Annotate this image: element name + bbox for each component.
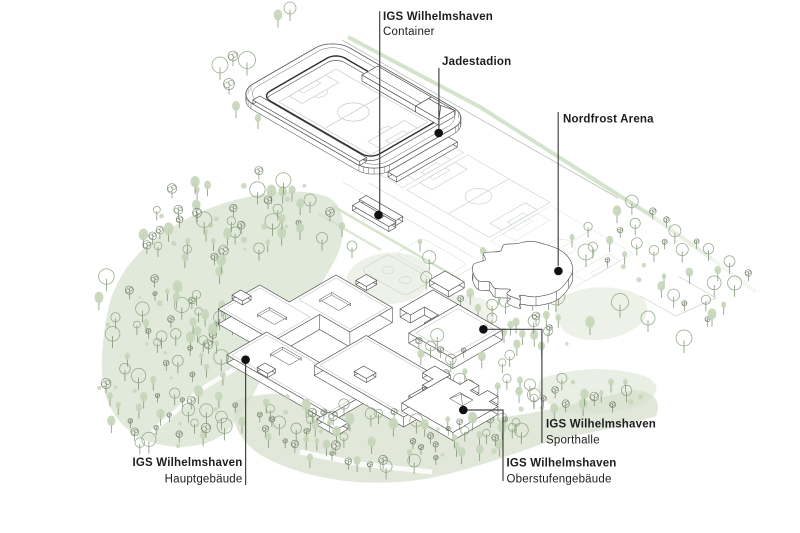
- svg-text:Jadestadion: Jadestadion: [442, 56, 511, 68]
- svg-text:Oberstufengebäude: Oberstufengebäude: [507, 474, 612, 486]
- svg-text:IGS Wilhelmshaven: IGS Wilhelmshaven: [132, 457, 242, 469]
- svg-text:IGS Wilhelmshaven: IGS Wilhelmshaven: [546, 419, 656, 431]
- svg-text:IGS Wilhelmshaven: IGS Wilhelmshaven: [507, 458, 617, 470]
- svg-text:Nordfrost Arena: Nordfrost Arena: [563, 114, 654, 126]
- svg-text:Container: Container: [383, 26, 435, 38]
- svg-text:Sporthalle: Sporthalle: [546, 435, 600, 447]
- svg-text:IGS Wilhelmshaven: IGS Wilhelmshaven: [383, 11, 493, 23]
- svg-text:Hauptgebäude: Hauptgebäude: [165, 474, 243, 486]
